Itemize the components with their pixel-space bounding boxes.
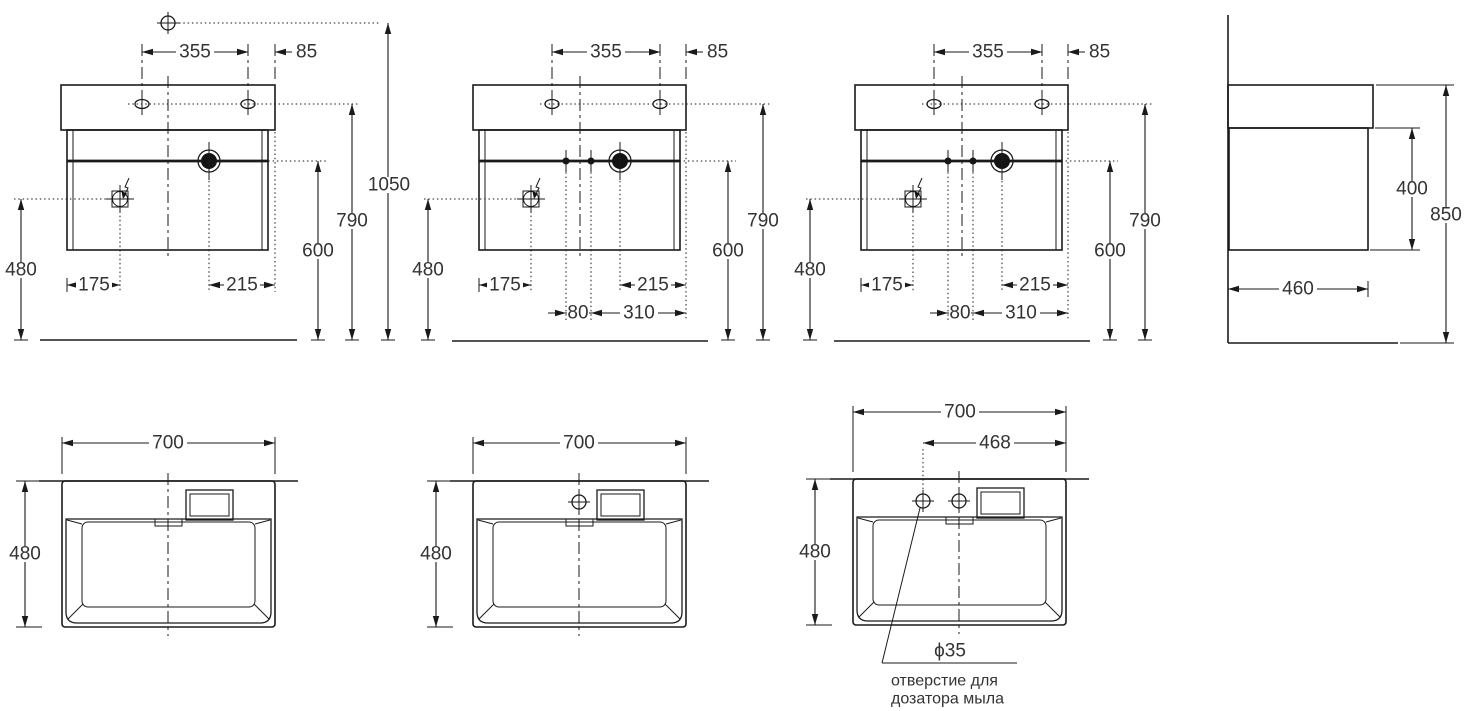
hole-diameter-label: ϕ35 [934,641,966,662]
faucet-hole [568,491,590,513]
siphon-offset-label: 215 [226,275,258,296]
soap-dispenser-hole [912,490,934,512]
dispenser-note-line2: дозатора мыла [891,691,1004,708]
mixer-height-label: 1050 [368,175,410,196]
outlet-offset-label: 175 [78,275,110,296]
front-view-2 [409,42,782,342]
faucet-hole [948,490,970,512]
cabinet-height-label: 400 [1396,179,1428,200]
basin-side-outline [1228,85,1373,128]
cabinet-side-outline [1229,128,1368,250]
plan-depth-label: 480 [799,542,831,563]
hole-spacing-label: 355 [179,42,211,63]
front-view-3 [791,42,1164,342]
outlet-height-label: 480 [5,260,37,281]
total-height-label: 850 [1430,205,1462,226]
plan-width-label: 700 [944,402,976,423]
drawing-canvas: 700 480 [0,0,1467,711]
plan-view-3: 700 468 480 ϕ35 отверстие для дозатора м… [796,402,1089,708]
front-view-1: 355 85 175 215 480 600 790 1050 [2,12,412,340]
dispenser-note-line1: отверстие для [891,673,998,690]
mixer-mount-mark [157,12,179,34]
plan-view-1 [6,433,298,637]
depth-label: 460 [1282,279,1314,300]
vanity-technical-drawing: 700 480 [0,0,1467,711]
side-view: 400 850 460 [1228,15,1465,343]
plan-view-2 [417,433,709,637]
dispenser-annotation: ϕ35 отверстие для дозатора мыла [882,508,1017,708]
edge-offset-label: 85 [296,42,317,63]
holes-height-label: 790 [336,211,368,232]
dispenser-offset-label: 468 [979,433,1011,454]
siphon-height-label: 600 [302,241,334,262]
